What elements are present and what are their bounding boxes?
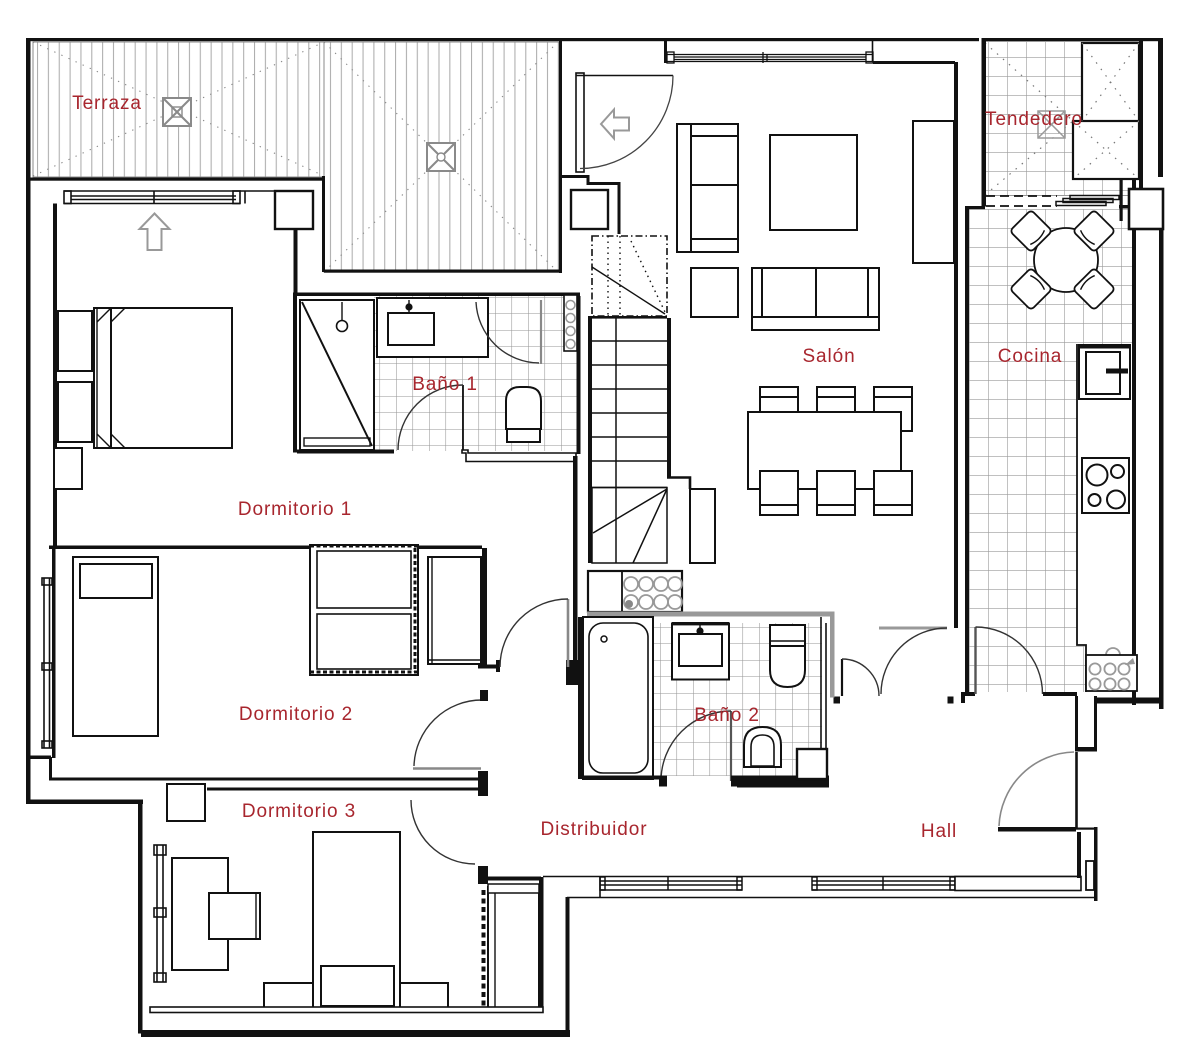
svg-text:Distribuidor: Distribuidor — [541, 819, 648, 840]
svg-text:Dormitorio 1: Dormitorio 1 — [238, 499, 352, 520]
svg-text:Tendedero: Tendedero — [985, 109, 1083, 130]
svg-text:Baño 1: Baño 1 — [412, 374, 478, 395]
svg-text:Hall: Hall — [921, 821, 957, 842]
svg-text:Baño 2: Baño 2 — [694, 705, 760, 726]
svg-text:Cocina: Cocina — [998, 346, 1063, 367]
svg-text:Terraza: Terraza — [72, 93, 142, 114]
svg-text:Dormitorio 2: Dormitorio 2 — [239, 704, 353, 725]
svg-text:Dormitorio 3: Dormitorio 3 — [242, 801, 356, 822]
svg-text:Salón: Salón — [802, 346, 855, 367]
